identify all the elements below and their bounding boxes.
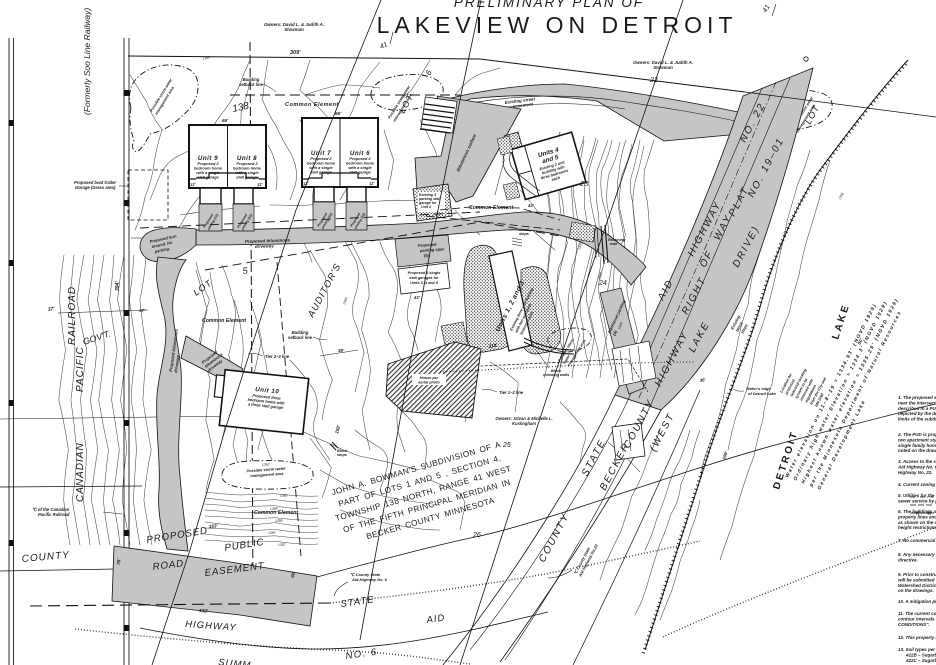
svg-text:422C – Sugarbush: 422C – Sugarbush [905, 658, 936, 663]
svg-text:directive.: directive. [898, 557, 918, 562]
svg-text:stall garage: stall garage [349, 170, 371, 175]
svg-text:394': 394' [115, 281, 121, 291]
svg-text:2. The PUD is proposed to c: 2. The PUD is proposed to c [897, 432, 936, 437]
svg-text:309': 309' [290, 50, 301, 56]
svg-text:steps: steps [337, 453, 347, 457]
svg-text:CONDITIONS".: CONDITIONS". [898, 622, 930, 627]
svg-text:LAKEVIEW ON DETROIT: LAKEVIEW ON DETROIT [377, 12, 738, 38]
svg-text:12. This property is not in a: 12. This property is not in a [898, 635, 936, 640]
svg-text:4. Current zoning of the pro: 4. Current zoning of the pro [897, 482, 936, 487]
svg-text:26: 26 [472, 532, 481, 539]
svg-text:9. Prior to construction a st: 9. Prior to construction a st [898, 572, 936, 577]
svg-text:CANADIAN: CANADIAN [75, 442, 86, 502]
svg-text:RAILROAD: RAILROAD [67, 286, 78, 345]
svg-text:driveway: driveway [255, 243, 275, 249]
svg-text:setback line: setback line [239, 82, 264, 87]
svg-text:7. No commercial uses are: 7. No commercial uses are [898, 538, 936, 543]
svg-text:3. Access to the subdivision: 3. Access to the subdivision [898, 459, 936, 464]
svg-text:Stowman: Stowman [653, 65, 673, 70]
svg-text:property lines and the highw: property lines and the highw [897, 514, 936, 519]
svg-text:Tier 1–2 line: Tier 1–2 line [499, 390, 524, 395]
svg-text:single family homes as sho: single family homes as sho [898, 443, 936, 448]
svg-text:66': 66' [335, 111, 342, 116]
svg-text:Highway No. 22.: Highway No. 22. [898, 470, 933, 475]
svg-text:(Formerly Soo Line Railway): (Formerly Soo Line Railway) [82, 8, 92, 115]
svg-text:Aid Highway No. 6 and from: Aid Highway No. 6 and from [897, 464, 936, 469]
svg-text:storage (Grass area): storage (Grass area) [75, 185, 116, 190]
svg-text:Common Element: Common Element [254, 510, 298, 516]
svg-text:setback line: setback line [288, 335, 313, 340]
svg-text:wall: wall [610, 242, 618, 246]
svg-text:25: 25 [502, 442, 511, 449]
svg-text:of Detroit Lake: of Detroit Lake [748, 391, 777, 396]
svg-text:steps: steps [519, 232, 529, 236]
svg-text:stall garage: stall garage [197, 175, 219, 180]
svg-text:as shown on the drawings.: as shown on the drawings. [898, 520, 936, 525]
svg-text:two apartment style units a: two apartment style units a [898, 437, 936, 442]
svg-text:1354: 1354 [268, 530, 276, 535]
svg-text:depicted by the drawings an: depicted by the drawings an [898, 411, 936, 416]
svg-text:stall garage: stall garage [310, 170, 332, 175]
svg-text:near the intersection of Stat: near the intersection of Stat [898, 400, 936, 405]
svg-text:1352: 1352 [278, 542, 286, 547]
svg-text:1360: 1360 [280, 493, 288, 498]
svg-text:will be submitted to the Pel: will be submitted to the Pel [898, 577, 936, 582]
svg-text:422B – Sugarbush: 422B – Sugarbush [905, 652, 936, 657]
svg-text:Unit 4: Unit 4 [421, 205, 431, 209]
svg-text:Proposed 3 single: Proposed 3 single [408, 271, 441, 275]
svg-text:Stowman: Stowman [284, 27, 304, 32]
svg-text:132': 132' [199, 608, 209, 614]
svg-text:Watershed District and the: Watershed District and the [898, 583, 936, 588]
svg-text:House per: House per [420, 376, 439, 380]
svg-text:66': 66' [222, 118, 229, 123]
svg-text:Kuslingham: Kuslingham [512, 421, 536, 426]
svg-text:23: 23 [579, 179, 589, 188]
svg-text:contour intervals as shown: contour intervals as shown [898, 616, 936, 621]
svg-text:PACIFIC: PACIFIC [75, 346, 86, 392]
svg-text:42': 42' [527, 203, 535, 208]
svg-text:sewer service by private se: sewer service by private se [898, 498, 936, 503]
svg-text:described in a PUD docume: described in a PUD docume [898, 406, 936, 411]
svg-text:153': 153' [209, 523, 219, 529]
svg-text:stall garage: stall garage [236, 175, 258, 180]
svg-text:stall garages for: stall garages for [409, 276, 439, 280]
svg-text:24: 24 [598, 280, 607, 287]
svg-text:41': 41' [413, 295, 421, 300]
svg-text:1358: 1358 [270, 506, 278, 511]
svg-text:height restrictions are prop: height restrictions are prop [898, 525, 936, 530]
svg-text:Pacific Railroad: Pacific Railroad [38, 512, 70, 517]
svg-text:on the drawings.: on the drawings. [898, 588, 934, 593]
svg-text:retaining walls: retaining walls [543, 373, 569, 377]
svg-text:Tier 2–3 line: Tier 2–3 line [265, 354, 290, 359]
svg-text:10. A mitigation plan has be: 10. A mitigation plan has be [898, 599, 936, 604]
svg-text:37': 37' [139, 308, 146, 313]
svg-text:aerial photo: aerial photo [418, 381, 440, 385]
svg-text:1356: 1356 [275, 518, 283, 523]
svg-text:limits of the subdivision and: limits of the subdivision and [898, 417, 936, 422]
svg-text:1. The proposed subdivision i: 1. The proposed subdivision i [898, 395, 936, 400]
svg-text:noted on the drawings.: noted on the drawings. [898, 448, 936, 453]
svg-text:11. The current conditions s: 11. The current conditions s [898, 611, 936, 616]
svg-text:1352: 1352 [262, 462, 270, 467]
svg-text:Aid Highway No. 6: Aid Highway No. 6 [351, 577, 388, 582]
svg-text:8. Any necessary environm: 8. Any necessary environm [898, 552, 936, 557]
svg-text:Common Element: Common Element [469, 205, 513, 211]
svg-text:PRELIMINARY PLAN OF: PRELIMINARY PLAN OF [454, 0, 644, 10]
svg-text:Common Element: Common Element [285, 102, 339, 108]
svg-text:Common Element: Common Element [202, 318, 246, 324]
svg-text:13. Soil types per the Becke: 13. Soil types per the Becke [898, 647, 936, 652]
